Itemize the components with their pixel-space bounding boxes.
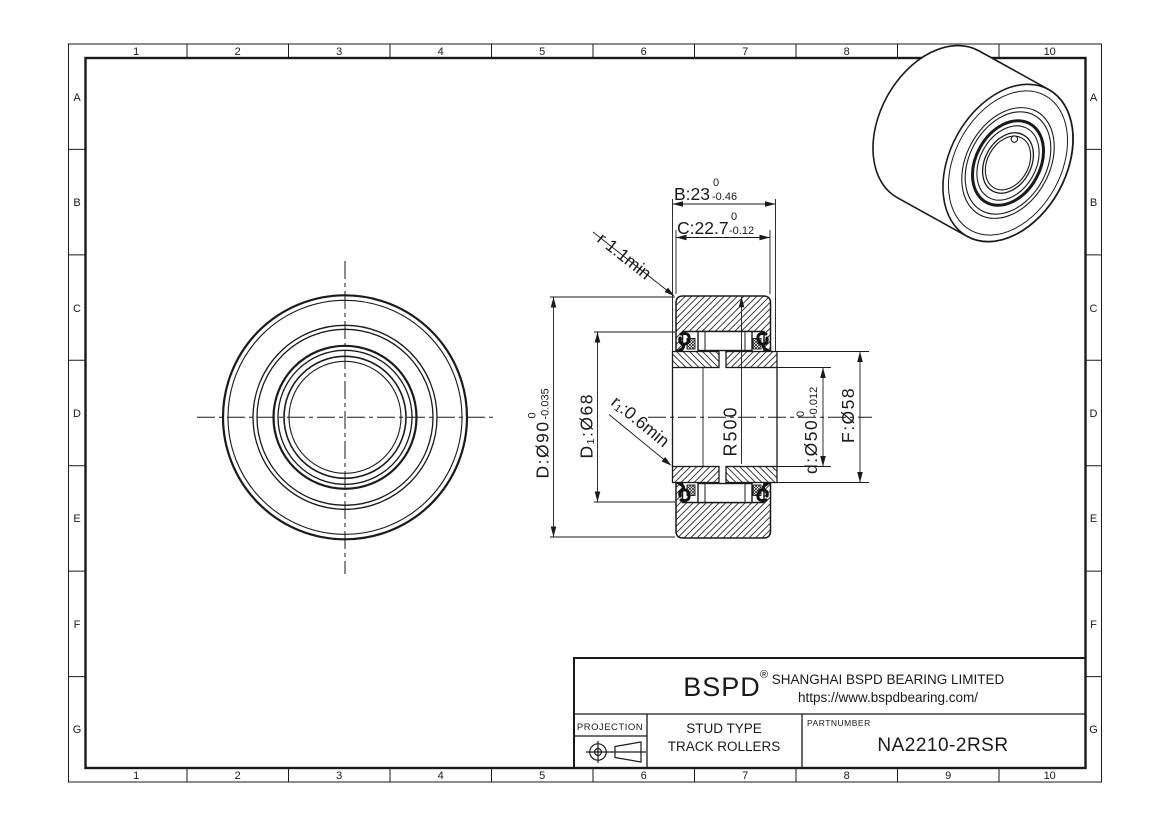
inner-ring-top-left <box>673 352 720 368</box>
dim-tol-D-upper: 0 <box>527 412 539 418</box>
front-view-centerlines <box>197 261 493 574</box>
col-label-top: 6 <box>641 46 647 58</box>
row-label-left: F <box>74 619 81 631</box>
partnumber-label: PARTNUMBER <box>807 718 871 728</box>
registered-mark: ® <box>760 669 768 681</box>
row-label-right: A <box>1090 92 1098 104</box>
roller-top <box>698 332 752 351</box>
col-label-top: 10 <box>1044 46 1056 58</box>
dim-text-B: B:23 <box>674 184 710 204</box>
col-label-bottom: 1 <box>133 770 139 782</box>
inner-ring-bottom-right <box>726 467 777 483</box>
col-label-top: 8 <box>844 46 850 58</box>
dim-text-D1: D₁:Ø68 <box>577 393 597 458</box>
col-label-bottom: 10 <box>1044 770 1056 782</box>
col-label-bottom: 3 <box>336 770 342 782</box>
row-label-left: B <box>73 197 80 209</box>
col-label-bottom: 5 <box>539 770 545 782</box>
col-label-top: 2 <box>235 46 241 58</box>
col-label-top: 3 <box>336 46 342 58</box>
first-angle-projection-icon <box>586 741 646 763</box>
col-label-top: 5 <box>539 46 545 58</box>
col-label-bottom: 8 <box>844 770 850 782</box>
dim-tol-C-lower: -0.12 <box>729 225 754 237</box>
company-logo: BSPD <box>683 672 761 702</box>
dim-tol-d-lower: -0.012 <box>808 387 820 418</box>
drawing-sheet: 1 2 3 4 5 6 7 8 9 10 1 2 3 4 5 6 7 8 9 1… <box>0 0 1170 827</box>
row-label-left: A <box>73 92 81 104</box>
dim-text-R500: R500 <box>721 405 741 456</box>
dim-tol-D-lower: -0.035 <box>540 388 552 419</box>
col-label-top: 4 <box>438 46 444 58</box>
dim-text-r: r 1.1min <box>594 228 656 283</box>
col-label-bottom: 2 <box>235 770 241 782</box>
col-label-bottom: 6 <box>641 770 647 782</box>
col-label-bottom: 4 <box>438 770 444 782</box>
company-website: https://www.bspdbearing.com/ <box>798 690 978 705</box>
front-view <box>197 261 493 574</box>
dim-text-C: C:22.7 <box>677 218 729 238</box>
dim-text-D: D:Ø90 <box>533 420 553 478</box>
drawing-canvas: 1 2 3 4 5 6 7 8 9 10 1 2 3 4 5 6 7 8 9 1… <box>0 0 1170 827</box>
row-label-right: B <box>1090 197 1097 209</box>
title-block: BSPD ® SHANGHAI BSPD BEARING LIMITED htt… <box>574 658 1086 768</box>
row-label-left: G <box>73 724 82 736</box>
dim-text-F: F:Ø58 <box>838 387 858 443</box>
product-type-line2: TRACK ROLLERS <box>668 739 781 754</box>
row-label-right: C <box>1090 303 1098 315</box>
company-name: SHANGHAI BSPD BEARING LIMITED <box>772 672 1005 687</box>
row-label-left: D <box>73 408 81 420</box>
col-label-top: 1 <box>133 46 139 58</box>
inner-ring-bottom-left <box>673 467 720 483</box>
row-label-right: G <box>1089 724 1098 736</box>
col-label-bottom: 9 <box>945 770 951 782</box>
inner-ring-top-right <box>726 352 777 368</box>
dim-tol-B-upper: 0 <box>713 177 719 189</box>
dim-tol-d-upper: 0 <box>795 411 807 417</box>
row-label-right: E <box>1090 513 1097 525</box>
row-label-left: E <box>73 513 80 525</box>
row-label-right: D <box>1090 408 1098 420</box>
roller-bottom <box>698 484 752 503</box>
dim-tol-B-lower: -0.46 <box>712 191 737 203</box>
dim-text-d: d:Ø50 <box>801 419 821 474</box>
row-label-left: C <box>73 303 81 315</box>
col-label-top: 7 <box>742 46 748 58</box>
projection-label: PROJECTION <box>577 722 643 733</box>
partnumber-value: NA2210-2RSR <box>877 735 1008 756</box>
col-label-bottom: 7 <box>742 770 748 782</box>
dim-tol-C-upper: 0 <box>731 211 737 223</box>
product-type-line1: STUD TYPE <box>686 721 762 736</box>
row-label-right: F <box>1090 619 1097 631</box>
